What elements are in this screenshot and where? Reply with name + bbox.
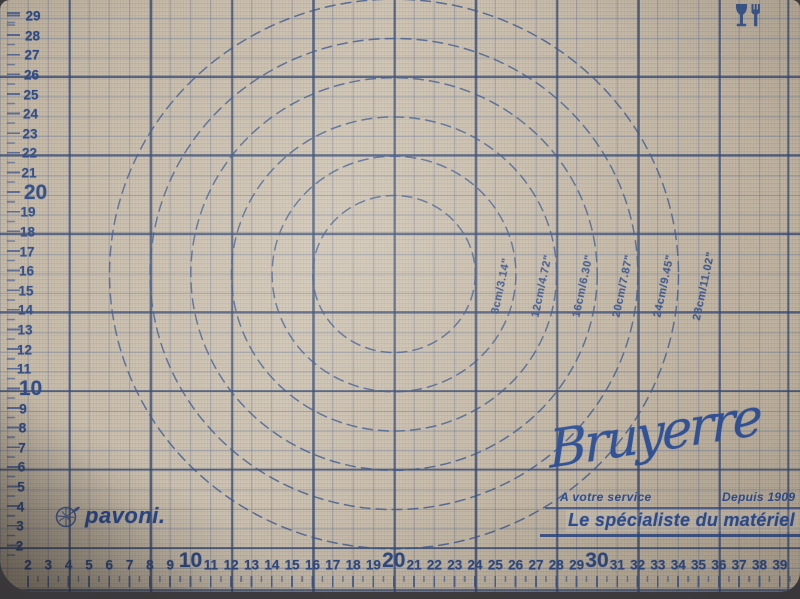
bottom-ruler-number: 17 <box>325 558 340 573</box>
bottom-ruler-number: 6 <box>106 558 114 573</box>
left-ruler-number: 8 <box>19 421 27 436</box>
bottom-ruler-number: 33 <box>650 558 665 573</box>
photo-scene: 8cm/3.14"12cm/4.72"16cm/6.30"20cm/7.87"2… <box>0 0 800 599</box>
bottom-ruler-number: 2 <box>24 558 32 573</box>
left-ruler-number: 12 <box>17 342 32 357</box>
bottom-ruler-number: 9 <box>166 558 174 573</box>
bottom-ruler-number: 8 <box>146 558 154 573</box>
bottom-ruler-number: 30 <box>585 549 608 573</box>
bottom-ruler-number: 16 <box>305 558 320 573</box>
pavoni-emblem-icon <box>54 502 81 529</box>
bottom-ruler-number: 36 <box>711 558 726 573</box>
left-ruler-number: 26 <box>24 67 39 82</box>
bottom-ruler-number: 34 <box>671 558 686 573</box>
left-ruler-number: 17 <box>19 244 34 259</box>
bottom-ruler-number: 35 <box>691 558 706 573</box>
bottom-ruler-number: 23 <box>447 558 462 573</box>
left-ruler-number: 24 <box>23 107 38 122</box>
left-ruler-number: 13 <box>17 323 32 338</box>
bottom-ruler-half-ticks <box>24 576 794 582</box>
bottom-ruler-number: 22 <box>427 558 442 573</box>
bottom-ruler-number: 14 <box>264 558 279 573</box>
bottom-ruler-number: 12 <box>224 558 239 573</box>
established-year: Depuis 1909 <box>722 490 795 504</box>
left-ruler-number: 16 <box>19 264 34 279</box>
bottom-ruler-number: 15 <box>285 558 300 573</box>
bottom-ruler-number: 31 <box>610 558 625 573</box>
bottom-ruler-number: 27 <box>528 558 543 573</box>
left-ruler-number: 27 <box>24 48 39 63</box>
bottom-ruler-number: 5 <box>85 558 93 573</box>
tagline: Le spécialiste du matériel <box>566 510 800 532</box>
left-ruler-number: 21 <box>21 166 36 181</box>
left-ruler-number: 6 <box>18 460 26 475</box>
left-ruler-number: 2 <box>16 539 24 554</box>
tagline-bottom-rule <box>540 534 800 537</box>
left-ruler-number: 29 <box>25 9 40 24</box>
bottom-ruler-number: 24 <box>468 558 483 573</box>
left-ruler-number: 5 <box>17 480 25 495</box>
left-ruler-number: 22 <box>22 146 37 161</box>
left-ruler-number: 14 <box>18 303 33 318</box>
left-ruler-number: 18 <box>20 224 35 239</box>
circle-ring <box>272 156 516 392</box>
bottom-ruler-number: 18 <box>346 558 361 573</box>
left-ruler-number: 4 <box>17 499 25 514</box>
bottom-ruler-number: 3 <box>45 558 53 573</box>
bottom-ruler-number: 10 <box>179 549 202 573</box>
left-ruler-number: 3 <box>16 519 24 534</box>
left-ruler-number: 7 <box>18 440 26 455</box>
bottom-ruler-number: 11 <box>204 558 218 573</box>
circle-ring <box>313 195 476 352</box>
left-ruler-number: 15 <box>18 283 33 298</box>
bottom-ruler-number: 19 <box>366 558 381 573</box>
left-ruler-number: 19 <box>20 205 35 220</box>
bottom-ruler-number: 38 <box>752 558 767 573</box>
bottom-ruler-number: 21 <box>407 558 422 573</box>
service-slogan: A votre service <box>560 490 652 504</box>
left-ruler-number: 28 <box>25 28 40 43</box>
left-ruler-number: 10 <box>19 377 42 401</box>
circle-ring <box>191 78 597 471</box>
bottom-ruler-number: 29 <box>569 558 584 573</box>
left-ruler-half-ticks <box>7 6 15 558</box>
bottom-ruler-number: 26 <box>508 558 523 573</box>
left-ruler-number: 25 <box>23 87 38 102</box>
bottom-ruler-number: 28 <box>549 558 564 573</box>
tagline-top-rule <box>545 507 800 509</box>
bottom-ruler-number: 7 <box>126 558 134 573</box>
bottom-ruler-number: 37 <box>732 558 747 573</box>
bottom-ruler-number: 32 <box>630 558 645 573</box>
bottom-ruler-number: 25 <box>488 558 503 573</box>
wine-glass-fork-icon <box>734 3 760 36</box>
bottom-ruler-number: 13 <box>244 558 259 573</box>
bottom-ruler-number: 4 <box>65 558 73 573</box>
baking-mat: 8cm/3.14"12cm/4.72"16cm/6.30"20cm/7.87"2… <box>0 0 800 592</box>
bottom-ruler-number: 39 <box>772 558 787 573</box>
left-ruler-number: 11 <box>17 362 31 377</box>
pavoni-logo-text: pavoni. <box>85 503 166 529</box>
left-ruler-number: 20 <box>24 181 47 205</box>
left-ruler-number: 23 <box>22 126 37 141</box>
pavoni-logo: pavoni. <box>54 502 166 529</box>
bottom-ruler-number: 20 <box>382 549 405 573</box>
left-ruler-number: 9 <box>19 401 27 416</box>
